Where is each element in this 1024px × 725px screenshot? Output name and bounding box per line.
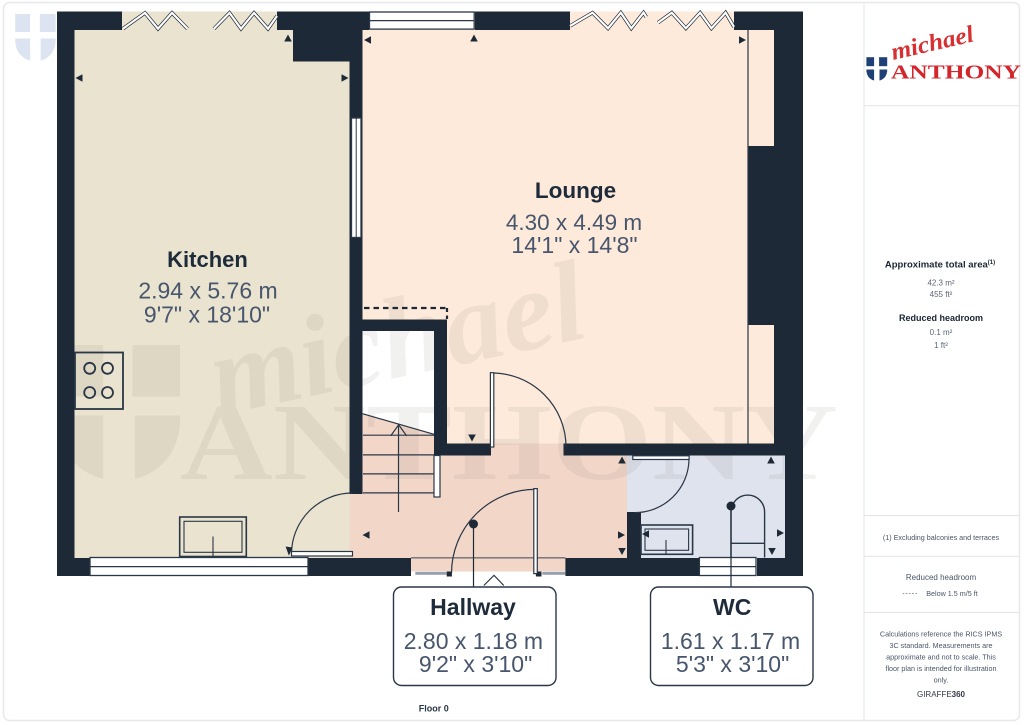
svg-text:Kitchen: Kitchen [167, 247, 248, 272]
svg-text:ANTHONY: ANTHONY [891, 62, 1021, 84]
svg-text:approximate and not to scale.: approximate and not to scale. This [886, 653, 996, 662]
svg-text:5'3" x 3'10": 5'3" x 3'10" [676, 651, 789, 677]
svg-text:ANTHONY: ANTHONY [180, 381, 838, 503]
svg-text:Floor 0: Floor 0 [419, 704, 449, 714]
svg-text:GIRAFFE360: GIRAFFE360 [917, 690, 966, 699]
svg-text:floor plan is intended for ill: floor plan is intended for illustration [885, 664, 996, 673]
svg-text:Approximate total area(1): Approximate total area(1) [885, 259, 995, 270]
svg-text:3C standard. Measurements are: 3C standard. Measurements are [889, 641, 992, 650]
svg-text:WC: WC [713, 594, 751, 620]
svg-text:14'1" x 14'8": 14'1" x 14'8" [511, 232, 637, 258]
svg-text:Below 1.5 m/5 ft: Below 1.5 m/5 ft [926, 589, 978, 598]
svg-text:1 ft²: 1 ft² [934, 341, 948, 350]
svg-text:9'7" x 18'10": 9'7" x 18'10" [144, 302, 270, 328]
svg-text:(1) Excluding balconies and te: (1) Excluding balconies and terraces [883, 533, 1000, 542]
svg-text:2.94 x 5.76 m: 2.94 x 5.76 m [138, 278, 277, 304]
svg-text:Reduced headroom: Reduced headroom [899, 313, 983, 323]
svg-text:Calculations reference the RIC: Calculations reference the RICS IPMS [880, 629, 1002, 638]
svg-text:Hallway: Hallway [430, 594, 516, 620]
svg-text:Lounge: Lounge [535, 178, 616, 203]
svg-text:Reduced headroom: Reduced headroom [906, 573, 977, 582]
svg-text:9'2" x 3'10": 9'2" x 3'10" [419, 651, 532, 677]
svg-text:455 ft²: 455 ft² [930, 290, 953, 299]
svg-text:0.1 m²: 0.1 m² [930, 328, 953, 337]
svg-text:42.3 m²: 42.3 m² [927, 279, 954, 288]
svg-text:only.: only. [934, 676, 949, 685]
